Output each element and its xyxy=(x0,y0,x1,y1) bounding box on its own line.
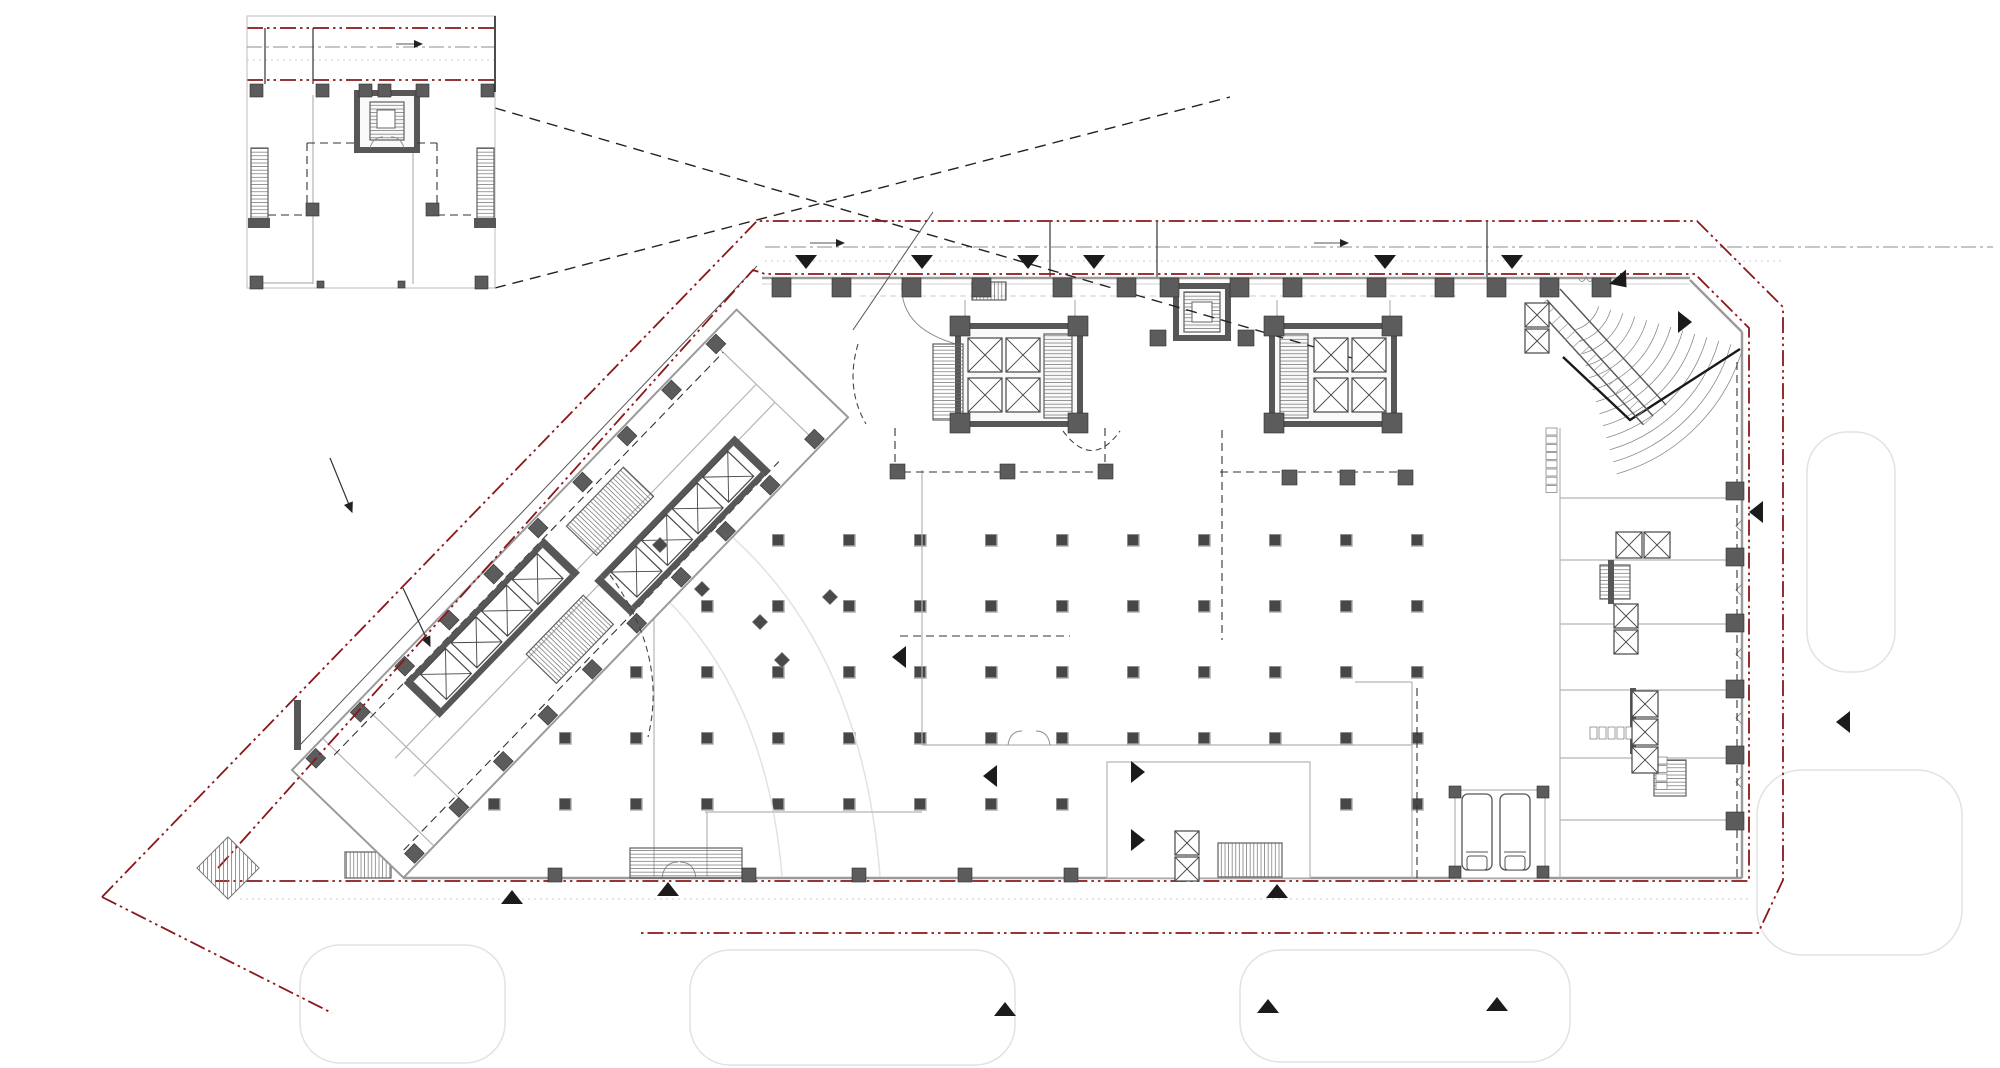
drawing-sheet xyxy=(0,0,2000,1068)
floor-plan-canvas xyxy=(0,0,2000,1068)
entry-steps xyxy=(630,848,742,878)
